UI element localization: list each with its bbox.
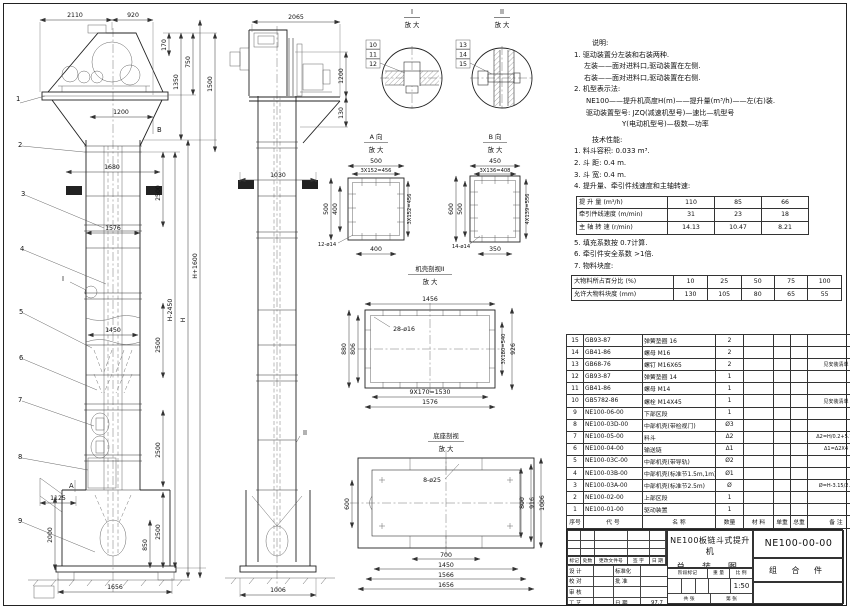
cell: [744, 504, 774, 516]
bom-row: 11GB41-86螺母 M141: [567, 383, 850, 395]
dim-2500-a: 2500: [155, 185, 162, 201]
dim-h-minus-2450: H-2450: [167, 299, 174, 322]
dim-b-600: 600: [448, 203, 455, 215]
right-panel: 说明: 1. 驱动装置分左装和右装两种. 左装——面对进料口,驱动装置在左侧. …: [563, 0, 847, 609]
cell: 1: [567, 504, 584, 516]
header-cell: 代 号: [584, 516, 643, 528]
dim-a-400-bottom: 400: [370, 246, 382, 253]
bom-row: 7NE100-05-00料斗Δ2Δ2=H/0.2+5.75: [567, 431, 850, 443]
balloon-3: 3: [21, 190, 25, 198]
note-line: 2. 机型表示法:: [574, 84, 842, 96]
bom-row: 8NE100-03D-00中部机壳(带检视门)Ø3: [567, 419, 850, 431]
cell: 提 升 量 (m³/h): [577, 196, 668, 209]
cell: 2: [716, 347, 744, 359]
dim-1125: 1125: [50, 495, 66, 502]
cell: 料斗: [643, 431, 716, 443]
cell: Ø: [716, 480, 744, 492]
cell: 85: [715, 196, 762, 209]
tech-line: 1. 料斗容积: 0.033 m³.: [574, 146, 842, 158]
cell: 10: [567, 395, 584, 407]
cell: 110: [668, 196, 715, 209]
cell: 审 核: [568, 587, 594, 598]
balloon-9: 9: [18, 517, 22, 525]
view-b-title: B 向: [489, 132, 502, 141]
shell-mag: 放 大: [423, 277, 438, 286]
cell: [594, 576, 614, 587]
cell: [774, 407, 791, 419]
base-title: 底座剖视: [433, 431, 459, 440]
dim-a-400-left: 400: [332, 203, 339, 215]
dim-base-1656: 1656: [438, 582, 454, 589]
lump-row: 大物料所占百分比 (%)10255075100: [572, 276, 842, 289]
cell: Δ1=Δ2X4: [808, 443, 850, 455]
dim-170: 170: [161, 39, 168, 51]
detail-ii: II 放 大 13 14 15: [456, 8, 534, 110]
cell: 1: [716, 504, 744, 516]
cell: [744, 383, 774, 395]
cell: 1: [716, 407, 744, 419]
tech-line: 2. 斗 距: 0.4 m.: [574, 158, 842, 170]
view-b-marker: B: [157, 126, 162, 134]
view-a-detail: A 向 放 大 500 3X152=456 500 400 3X152=456 …: [318, 132, 413, 254]
dim-base-1006: 1006: [539, 495, 546, 511]
cell: 75: [774, 276, 807, 289]
dim-base-916: 916: [529, 497, 536, 509]
cell: 97.7: [641, 597, 668, 604]
dim-1656-front: 1656: [107, 584, 123, 591]
header-cell: 总重: [791, 516, 808, 528]
cell: [594, 587, 614, 598]
cell: [808, 455, 850, 467]
cell: [791, 443, 808, 455]
cell: Ø3: [716, 419, 744, 431]
cell: 3: [567, 480, 584, 492]
cell: 中部机壳(带导轨): [643, 455, 716, 467]
cell: [641, 587, 668, 598]
sheet-index: 第 张: [711, 594, 752, 604]
header-cell: 备 注: [808, 516, 850, 528]
detail-i-mag: 放 大: [405, 20, 420, 29]
bom-row: 1NE100-01-00驱动装置1: [567, 504, 850, 516]
balloon-8: 8: [18, 453, 22, 461]
dim-1200: 1200: [113, 109, 129, 116]
cell: 50: [741, 276, 774, 289]
cell: [791, 480, 808, 492]
cell: [791, 335, 808, 347]
cell: [774, 371, 791, 383]
dim-b-4x139: 4X139=556: [525, 193, 531, 224]
cell: 14.13: [668, 221, 715, 234]
cell: 1: [716, 371, 744, 383]
role-row: 审 核: [568, 587, 668, 598]
cell: GB5782-86: [584, 395, 643, 407]
balloon-15: 15: [459, 61, 467, 68]
cell: [614, 587, 641, 598]
cell: 6: [567, 443, 584, 455]
cell: 弹簧垫圈 16: [643, 335, 716, 347]
cell: [791, 407, 808, 419]
part-type-cell: 组 合 件: [753, 558, 844, 582]
cell: [791, 455, 808, 467]
rev-col: 签 字: [628, 557, 650, 564]
dim-base-700: 700: [440, 552, 452, 559]
scale-value: 1:50: [731, 579, 752, 593]
cell: [791, 383, 808, 395]
dim-1680: 1680: [104, 164, 120, 171]
bom-row: 2NE100-02-00上部区段1: [567, 492, 850, 504]
cell: 12: [567, 371, 584, 383]
rev-col: 标记: [568, 557, 581, 564]
side-view: [225, 26, 340, 592]
tech-line: 6. 牵引件安全系数 >1倍.: [574, 249, 842, 261]
cell: 10.47: [715, 221, 762, 234]
cell: 11: [567, 383, 584, 395]
dim-a-3x152-top: 3X152=456: [360, 168, 391, 174]
dim-2500-c: 2500: [155, 442, 162, 458]
stage-grid: 阶段标记 重 量 比 例 1:50 共 张 第 张: [667, 568, 753, 604]
view-a-title: A 向: [370, 132, 383, 141]
cell: [791, 359, 808, 371]
cell: 中部机壳(带检视门): [643, 419, 716, 431]
cell: GB93-87: [584, 335, 643, 347]
note-line: NE100——提升机高度H(m)——提升量(m³/h)——左(右)装.: [574, 96, 842, 108]
cell: NE100-03A-00: [584, 480, 643, 492]
note-line: 驱动装置型号: JZQ(减速机型号)—速比—机型号: [574, 108, 842, 120]
cell: [744, 468, 774, 480]
dim-b-450: 450: [489, 158, 501, 165]
balloon-4: 4: [20, 245, 24, 253]
cell: 1: [716, 383, 744, 395]
cell: 23: [715, 209, 762, 222]
cell: [808, 347, 850, 359]
cell: NE100-01-00: [584, 504, 643, 516]
cell: 见安装清单: [808, 359, 850, 371]
cell: NE100-05-00: [584, 431, 643, 443]
cell: 允许大物料块度 (mm): [572, 288, 674, 301]
dim-b-500: 500: [457, 203, 464, 215]
cell: 输送链: [643, 443, 716, 455]
cell: 螺钉 M16X65: [643, 359, 716, 371]
dim-a-500-top: 500: [370, 158, 382, 165]
title-block: 标记 处数 更改文件号 签 字 日 期 设 计标准化校 对批 准审 核工 艺日 …: [566, 529, 843, 605]
cell: [774, 359, 791, 371]
cell: [744, 419, 774, 431]
cell: [594, 597, 614, 604]
bom-table: 15GB93-87弹簧垫圈 16214GB41-86螺母 M16213GB68-…: [566, 334, 850, 529]
dim-shell-1576: 1576: [422, 399, 438, 406]
cell: 9: [567, 407, 584, 419]
detail-i-title: I: [411, 8, 413, 16]
cell: 2: [716, 359, 744, 371]
cell: [744, 371, 774, 383]
revision-header: 标记 处数 更改文件号 签 字 日 期: [567, 556, 667, 565]
dim-shell-9x170: 9X170=1530: [410, 389, 451, 396]
cell: [774, 492, 791, 504]
dim-130: 130: [338, 107, 345, 119]
cell: [774, 419, 791, 431]
cell: [808, 492, 850, 504]
cell: [774, 443, 791, 455]
cell: Δ2=H/0.2+5.75: [808, 431, 850, 443]
cell: [774, 480, 791, 492]
cell: [744, 431, 774, 443]
dim-shell-3x180: 3X180=540: [501, 333, 507, 364]
header-cell: 序号: [567, 516, 584, 528]
balloon-13: 13: [459, 42, 467, 49]
cell: NE100-03C-00: [584, 455, 643, 467]
detail-ii-mag: 放 大: [495, 20, 510, 29]
view-b-mag: 放 大: [488, 145, 503, 154]
rev-col: 处数: [581, 557, 594, 564]
dim-b-350: 350: [489, 246, 501, 253]
drawing-type: 总 装 图: [668, 560, 752, 568]
cell: 14: [567, 347, 584, 359]
cell: 螺母 M16: [643, 347, 716, 359]
cell: NE100-06-00: [584, 407, 643, 419]
revision-rows: [567, 530, 667, 556]
balloon-6: 6: [19, 354, 23, 362]
cell: [791, 468, 808, 480]
base-section-detail: 底座剖视 放 大 8-ø25 600 800 916 1006 700 1450…: [344, 431, 546, 589]
cell: [744, 492, 774, 504]
role-row: 设 计标准化: [568, 566, 668, 577]
dim-2500-b: 2500: [155, 337, 162, 353]
bom-row: 13GB68-76螺钉 M16X652见安装清单: [567, 359, 850, 371]
note-line: 右装——面对进料口,驱动装置在右侧.: [574, 73, 842, 85]
balloon-2: 2: [18, 141, 22, 149]
bom-row: 14GB41-86螺母 M162: [567, 347, 850, 359]
cell: 2: [567, 492, 584, 504]
cell: NE100-03D-00: [584, 419, 643, 431]
cell: 弹簧垫圈 14: [643, 371, 716, 383]
cell: [791, 371, 808, 383]
bom-row: 5NE100-03C-00中部机壳(带导轨)Ø2: [567, 455, 850, 467]
dim-1500: 1500: [207, 76, 214, 92]
dim-1350: 1350: [173, 74, 180, 90]
tech-line: 5. 填充系数按 0.7计算.: [574, 238, 842, 250]
dim-h: H: [180, 317, 187, 322]
cell: GB41-86: [584, 347, 643, 359]
cell: [744, 359, 774, 371]
bom-row: 4NE100-03B-00中部机壳(标准节1.5m,1m)Ø1: [567, 468, 850, 480]
tech-line: 3. 斗 宽: 0.4 m.: [574, 170, 842, 182]
dim-1200-side: 1200: [338, 68, 345, 84]
base-mag: 放 大: [439, 444, 454, 453]
cell: [808, 419, 850, 431]
dim-base-600: 600: [344, 498, 351, 510]
roles-area: 设 计标准化校 对批 准审 核工 艺日 期97.7: [567, 565, 667, 604]
cell: Δ1: [716, 443, 744, 455]
cell: 牵引件线速度 (m/min): [577, 209, 668, 222]
front-view: [20, 25, 190, 598]
cell: [594, 566, 614, 577]
cell: 日 期: [614, 597, 641, 604]
view-a-mag: 放 大: [369, 145, 384, 154]
dim-h-plus-1600: H+1600: [192, 253, 199, 279]
cell: 31: [668, 209, 715, 222]
drawing-number-cell: NE100-00-00: [753, 530, 844, 558]
tech-line: 4. 提升量、牵引件线速度和主轴转速:: [574, 181, 842, 193]
drawing-title-cell: NE100板链斗式提升机 总 装 图: [667, 530, 753, 568]
cell: 7: [567, 431, 584, 443]
dim-shell-806: 806: [350, 343, 357, 355]
dim-a-3x152-right: 3X152=456: [407, 193, 413, 224]
cell: 105: [707, 288, 741, 301]
cell: Δ2: [716, 431, 744, 443]
roles-table: 设 计标准化校 对批 准审 核工 艺日 期97.7: [567, 565, 667, 604]
cell: [808, 468, 850, 480]
cell: [774, 395, 791, 407]
cell: [744, 480, 774, 492]
cell: [791, 395, 808, 407]
cell: 大物料所占百分比 (%): [572, 276, 674, 289]
front-view-dimensions: 2110 920 170 1350 750 1500 1200 B 1680 1…: [40, 12, 217, 594]
bom-row: 15GB93-87弹簧垫圈 162: [567, 335, 850, 347]
cell: [641, 576, 668, 587]
dim-b-14xo14: 14-ø14: [452, 244, 471, 250]
part-type: 组 合 件: [754, 559, 843, 582]
cell: [774, 335, 791, 347]
header-cell: 材 料: [744, 516, 774, 528]
speed-row: 提 升 量 (m³/h)1108566: [577, 196, 809, 209]
scale-label: 比 例: [730, 569, 752, 578]
cell: NE100-04-00: [584, 443, 643, 455]
detail-i-marker: I: [62, 275, 64, 283]
cell: [808, 371, 850, 383]
rev-col: 更改文件号: [595, 557, 628, 564]
cell: 10: [674, 276, 708, 289]
cell: GB93-87: [584, 371, 643, 383]
bom-row: 10GB5782-86螺栓 M14X451见安装清单: [567, 395, 850, 407]
shell-section-detail: 机壳剖视II 放 大 1456 28-ø16 880 806 3X180=540…: [341, 264, 517, 407]
shell-title: 机壳剖视II: [415, 264, 444, 273]
bom-row: 3NE100-03A-00中部机壳(标准节2.5m)ØØ=H-3.15/2.5: [567, 480, 850, 492]
lump-row: 允许大物料块度 (mm)130105806555: [572, 288, 842, 301]
cell: [791, 347, 808, 359]
bom-header-row: 序号代 号名 称数量材 料单重总重备 注: [567, 516, 850, 528]
cell: 下部区段: [643, 407, 716, 419]
dim-base-800: 800: [519, 497, 526, 509]
dim-2110: 2110: [67, 12, 83, 19]
cell: [744, 395, 774, 407]
cell: [808, 335, 850, 347]
bom-row: 12GB93-87弹簧垫圈 141: [567, 371, 850, 383]
drawing-number: NE100-00-00: [754, 531, 843, 557]
cell: 螺栓 M14X45: [643, 395, 716, 407]
cell: 主 轴 转 速 (r/min): [577, 221, 668, 234]
cell: 驱动装置: [643, 504, 716, 516]
cell: Ø1: [716, 468, 744, 480]
cell: 55: [808, 288, 842, 301]
dim-2500-d: 2500: [155, 524, 162, 540]
dim-1450: 1450: [105, 327, 121, 334]
cell: 工 艺: [568, 597, 594, 604]
product-name: NE100板链斗式提升机: [668, 535, 752, 557]
balloon-10: 10: [369, 42, 377, 49]
dim-850: 850: [142, 539, 149, 551]
tech-line: 7. 物料块度:: [574, 261, 842, 273]
detail-i: I 放 大 10 11 12: [366, 8, 444, 110]
speed-row: 牵引件线速度 (m/min)312318: [577, 209, 809, 222]
dim-1030: 1030: [270, 172, 286, 179]
cell: 80: [741, 288, 774, 301]
header-cell: 单重: [774, 516, 791, 528]
dim-base-1566: 1566: [438, 572, 454, 579]
drawing-canvas: 2110 920 170 1350 750 1500 1200 B 1680 1…: [0, 0, 563, 609]
empty-cell: [753, 582, 844, 604]
cell: 100: [808, 276, 842, 289]
balloon-7: 7: [18, 396, 22, 404]
balloon-11: 11: [369, 52, 377, 59]
cell: 25: [707, 276, 741, 289]
cell: [791, 504, 808, 516]
cell: [774, 347, 791, 359]
lump-table: 大物料所占百分比 (%)10255075100允许大物料块度 (mm)13010…: [571, 275, 842, 301]
speed-table: 提 升 量 (m³/h)1108566牵引件线速度 (m/min)312318主…: [576, 196, 809, 235]
speed-row: 主 轴 转 速 (r/min)14.1310.478.21: [577, 221, 809, 234]
header-cell: 数量: [716, 516, 744, 528]
cell: [808, 504, 850, 516]
cell: 2: [716, 335, 744, 347]
cell: 见安装清单: [808, 395, 850, 407]
cell: 标准化: [614, 566, 641, 577]
notes-block: 说明: 1. 驱动装置分左装和右装两种. 左装——面对进料口,驱动装置在左侧. …: [574, 38, 842, 304]
cell: [744, 455, 774, 467]
bom-row: 6NE100-04-00输送链Δ1Δ1=Δ2X4: [567, 443, 850, 455]
cell: 1: [716, 395, 744, 407]
cell: [774, 504, 791, 516]
front-view-balloons: 1 2 3 4 5 6 7 8 9: [16, 95, 106, 552]
dim-shell-1456: 1456: [422, 296, 438, 303]
cell: 5: [567, 455, 584, 467]
dim-a-500-left: 500: [323, 203, 330, 215]
cell: [744, 407, 774, 419]
notes-heading: 说明:: [574, 38, 842, 50]
cell: 中部机壳(标准节2.5m): [643, 480, 716, 492]
dim-2065: 2065: [288, 14, 304, 21]
header-cell: 名 称: [643, 516, 716, 528]
cell: 18: [762, 209, 809, 222]
cell: 中部机壳(标准节1.5m,1m): [643, 468, 716, 480]
cell: 8.21: [762, 221, 809, 234]
sheet-total: 共 张: [668, 594, 711, 604]
cell: [774, 431, 791, 443]
cell: [774, 455, 791, 467]
view-a-marker: A: [69, 482, 74, 490]
cell: [791, 419, 808, 431]
view-b-detail: B 向 放 大 450 3X136=408 600 500 4X139=556 …: [448, 132, 531, 254]
cell: [791, 492, 808, 504]
dim-1576-col: 1576: [105, 225, 121, 232]
cell: [808, 407, 850, 419]
cell: 上部区段: [643, 492, 716, 504]
cell: 8: [567, 419, 584, 431]
note-line: 左装——面对进料口,驱动装置在左侧.: [574, 61, 842, 73]
cell: [744, 347, 774, 359]
weight-label: 重 量: [708, 569, 730, 578]
dim-920: 920: [127, 12, 139, 19]
cell: 设 计: [568, 566, 594, 577]
cell: 螺母 M14: [643, 383, 716, 395]
cell: Ø2: [716, 455, 744, 467]
dim-2000: 2000: [47, 527, 54, 543]
role-row: 校 对批 准: [568, 576, 668, 587]
dim-b-3x136: 3X136=408: [479, 168, 510, 174]
cell: NE100-02-00: [584, 492, 643, 504]
dim-base-1450: 1450: [438, 562, 454, 569]
detail-ii-title: II: [500, 8, 504, 16]
cell: Ø=H-3.15/2.5: [808, 480, 850, 492]
